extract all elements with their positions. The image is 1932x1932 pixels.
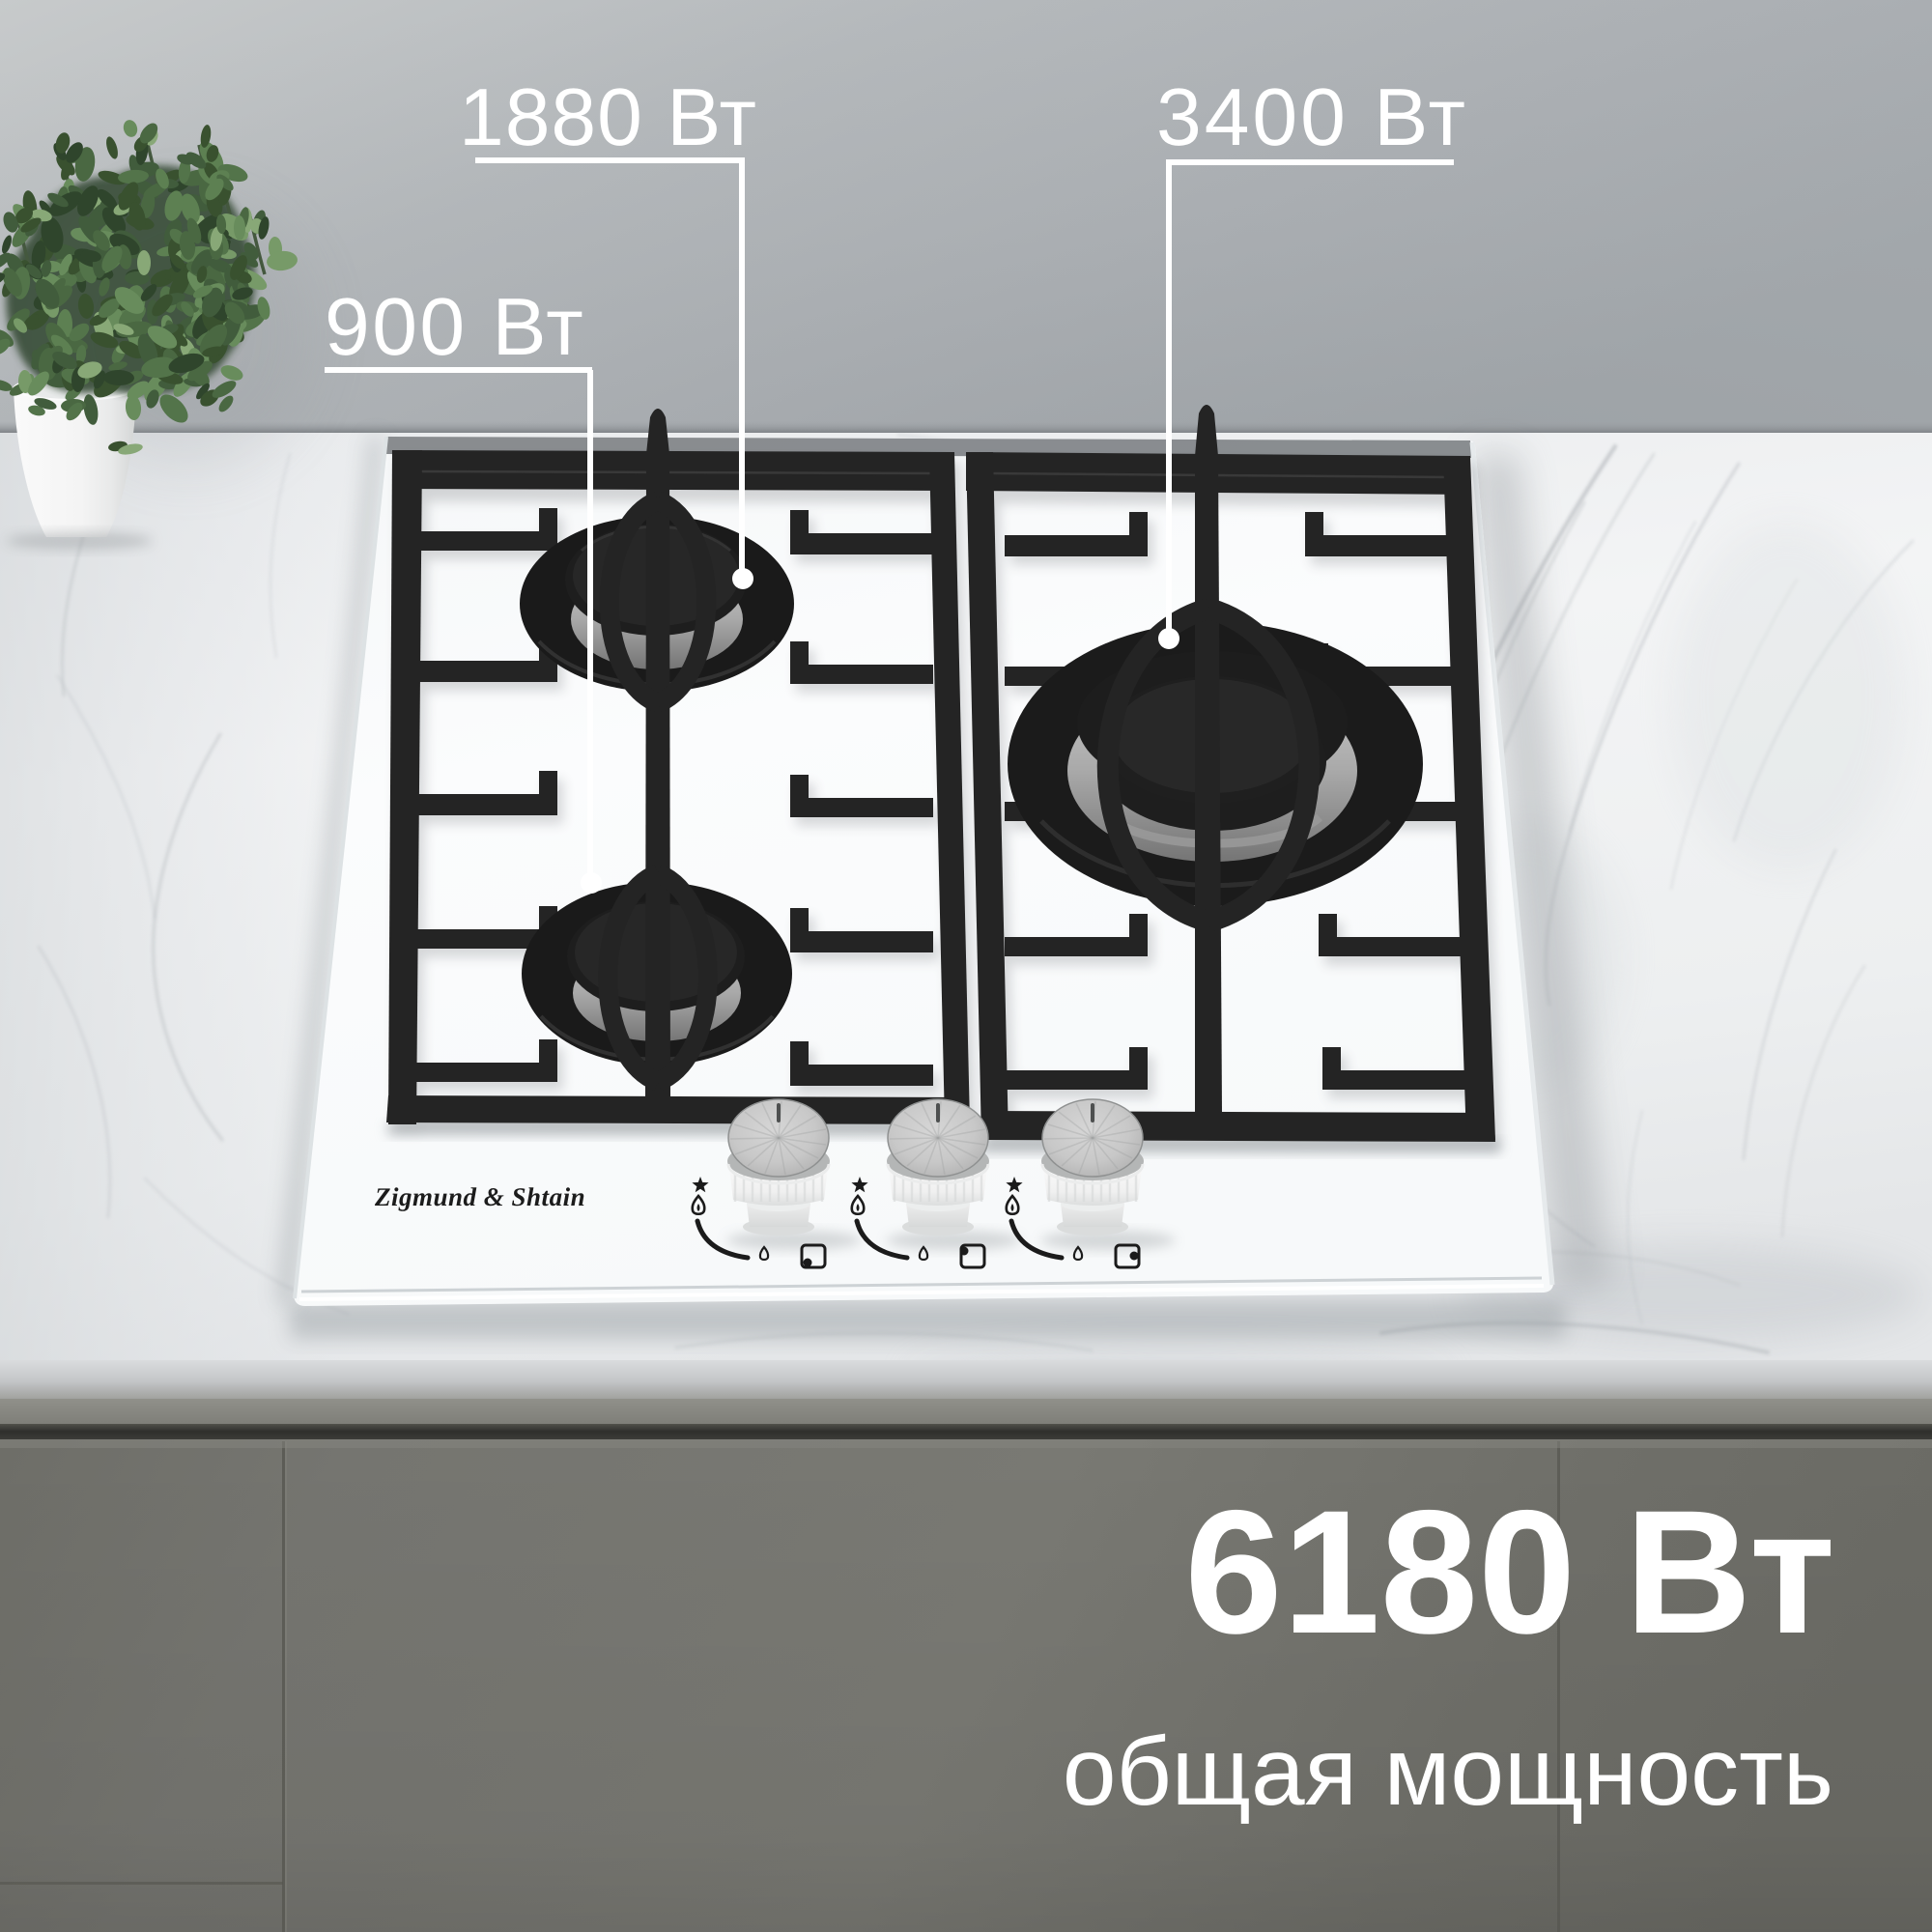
svg-text:Zigmund & Shtain: Zigmund & Shtain (374, 1182, 585, 1211)
svg-text:900 Вт: 900 Вт (325, 281, 585, 372)
svg-text:1880 Вт: 1880 Вт (459, 71, 757, 162)
svg-text:3400 Вт: 3400 Вт (1156, 71, 1468, 162)
svg-text:общая мощность: общая мощность (1063, 1718, 1833, 1826)
svg-text:6180 Вт: 6180 Вт (1184, 1473, 1835, 1670)
